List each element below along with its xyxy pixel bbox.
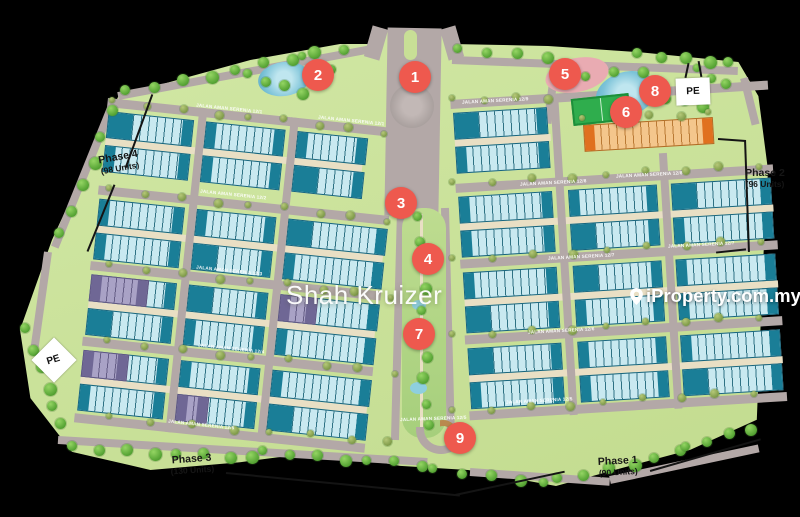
watermark-center: Shah Kruizer bbox=[286, 280, 442, 311]
tree-icon bbox=[512, 48, 523, 59]
tree-icon bbox=[107, 105, 118, 116]
tree-icon bbox=[704, 56, 717, 69]
tree-icon bbox=[489, 331, 496, 338]
map-marker-6: 6 bbox=[610, 96, 642, 128]
tree-icon bbox=[539, 478, 548, 487]
house-row bbox=[568, 185, 658, 217]
pe-box-right: PE bbox=[676, 77, 711, 105]
tree-icon bbox=[266, 429, 272, 435]
tree-icon bbox=[179, 345, 187, 353]
house-row bbox=[455, 141, 550, 174]
tree-icon bbox=[392, 371, 398, 377]
tree-icon bbox=[353, 363, 362, 372]
house-row-purple bbox=[81, 350, 130, 382]
location-pin-icon bbox=[630, 288, 643, 305]
map-marker-1: 1 bbox=[399, 61, 431, 93]
pe-label: PE bbox=[46, 353, 62, 367]
map-marker-2: 2 bbox=[302, 59, 334, 91]
tree-icon bbox=[705, 109, 711, 115]
tree-icon bbox=[216, 275, 225, 284]
map-marker-9: 9 bbox=[444, 422, 476, 454]
map-marker-8: 8 bbox=[639, 75, 671, 107]
tree-icon bbox=[486, 470, 497, 481]
tree-icon bbox=[544, 95, 553, 104]
tree-icon bbox=[566, 402, 575, 411]
map-marker-7: 7 bbox=[403, 318, 435, 350]
map-marker-3: 3 bbox=[385, 187, 417, 219]
tree-icon bbox=[106, 261, 112, 267]
tree-icon bbox=[579, 115, 585, 121]
tree-icon bbox=[723, 57, 733, 67]
tree-icon bbox=[297, 88, 309, 100]
tree-icon bbox=[751, 391, 757, 397]
tree-icon bbox=[243, 69, 252, 78]
tree-icon bbox=[104, 337, 110, 343]
tree-icon bbox=[316, 122, 324, 130]
tree-icon bbox=[639, 394, 646, 401]
tree-icon bbox=[682, 318, 690, 326]
tree-icon bbox=[424, 420, 434, 430]
tree-icon bbox=[645, 111, 653, 119]
phase-3-label: Phase 3 (130 Units) bbox=[159, 452, 224, 477]
tree-icon bbox=[180, 105, 188, 113]
tree-icon bbox=[758, 239, 764, 245]
map-marker-4: 4 bbox=[412, 243, 444, 275]
tree-icon bbox=[632, 48, 642, 58]
tree-icon bbox=[745, 424, 757, 436]
house-row bbox=[682, 363, 783, 396]
tree-icon bbox=[77, 179, 89, 191]
tree-icon bbox=[422, 400, 431, 409]
tree-icon bbox=[346, 211, 355, 220]
phase-1-label: Phase 1 (90 Units) bbox=[585, 454, 650, 478]
watermark-brand: iProperty.com.my bbox=[630, 285, 800, 307]
tree-icon bbox=[95, 132, 105, 142]
tree-icon bbox=[681, 442, 690, 451]
site-plan: PE PE Phase 4 (98 Units) Phase 2 (96 Uni… bbox=[0, 0, 800, 517]
tree-icon bbox=[298, 52, 306, 60]
house-row bbox=[453, 107, 548, 140]
tree-icon bbox=[258, 446, 267, 455]
tree-icon bbox=[143, 267, 150, 274]
tree-icon bbox=[246, 451, 259, 464]
tree-icon bbox=[428, 464, 437, 473]
entrance-median bbox=[404, 30, 417, 60]
tree-icon bbox=[120, 85, 130, 95]
tree-icon bbox=[449, 95, 455, 101]
tree-icon bbox=[600, 399, 606, 405]
tree-icon bbox=[67, 441, 77, 451]
tree-icon bbox=[47, 401, 57, 411]
pe-label: PE bbox=[686, 86, 700, 97]
tree-icon bbox=[248, 354, 254, 360]
tree-icon bbox=[44, 383, 57, 396]
tree-icon bbox=[287, 54, 299, 66]
tree-icon bbox=[603, 172, 609, 178]
tree-icon bbox=[383, 437, 392, 446]
tree-icon bbox=[488, 407, 495, 414]
tree-icon bbox=[721, 79, 731, 89]
tree-icon bbox=[20, 323, 30, 333]
house-row bbox=[463, 267, 558, 300]
tree-icon bbox=[323, 362, 331, 370]
house-group bbox=[450, 77, 788, 426]
tree-icon bbox=[702, 437, 712, 447]
tree-icon bbox=[756, 315, 762, 321]
tree-icon bbox=[677, 112, 686, 121]
tree-icon bbox=[307, 430, 314, 437]
tree-icon bbox=[312, 450, 323, 461]
house-row bbox=[470, 377, 565, 410]
map-marker-5: 5 bbox=[549, 58, 581, 90]
house-row bbox=[579, 370, 669, 402]
tree-icon bbox=[344, 123, 353, 132]
tree-icon bbox=[724, 428, 735, 439]
tree-icon bbox=[581, 72, 590, 81]
tree-icon bbox=[542, 52, 554, 64]
tree-icon bbox=[417, 461, 428, 472]
tree-icon bbox=[381, 131, 387, 137]
tree-icon bbox=[261, 77, 271, 87]
tree-icon bbox=[279, 80, 290, 91]
tree-icon bbox=[384, 219, 390, 225]
tree-icon bbox=[245, 114, 251, 120]
tree-icon bbox=[449, 331, 455, 337]
house-row bbox=[460, 225, 555, 258]
tree-icon bbox=[66, 206, 77, 217]
tree-icon bbox=[389, 456, 399, 466]
tree-icon bbox=[230, 65, 240, 75]
tree-icon bbox=[106, 413, 112, 419]
tree-icon bbox=[109, 97, 115, 103]
tree-icon bbox=[149, 82, 160, 93]
tree-icon bbox=[449, 179, 455, 185]
tree-icon bbox=[489, 255, 496, 262]
tree-icon bbox=[422, 352, 433, 363]
tree-icon bbox=[449, 255, 455, 261]
tree-icon bbox=[609, 67, 619, 77]
tree-icon bbox=[179, 269, 187, 277]
tree-icon bbox=[247, 278, 253, 284]
tree-icon bbox=[214, 199, 223, 208]
leader-line bbox=[226, 472, 460, 496]
tree-icon bbox=[603, 323, 609, 329]
house-row bbox=[458, 191, 553, 224]
tree-icon bbox=[362, 456, 371, 465]
tree-icon bbox=[413, 212, 422, 221]
phase-2-label: Phase 2 (96 Units) bbox=[733, 168, 797, 189]
tree-icon bbox=[680, 52, 692, 64]
tree-icon bbox=[348, 436, 356, 444]
tree-icon bbox=[710, 389, 719, 398]
tree-icon bbox=[678, 394, 686, 402]
tree-icon bbox=[225, 452, 237, 464]
tree-icon bbox=[340, 455, 352, 467]
tree-icon bbox=[215, 111, 224, 120]
tree-icon bbox=[649, 453, 659, 463]
tree-icon bbox=[453, 44, 462, 53]
tree-icon bbox=[529, 250, 537, 258]
house-row bbox=[577, 336, 667, 368]
tree-icon bbox=[245, 202, 251, 208]
tree-icon bbox=[449, 407, 455, 413]
tree-icon bbox=[54, 228, 64, 238]
house-row bbox=[467, 343, 562, 376]
tree-icon bbox=[55, 418, 66, 429]
tree-icon bbox=[178, 193, 186, 201]
tree-icon bbox=[489, 179, 496, 186]
tree-icon bbox=[317, 210, 325, 218]
tree-icon bbox=[339, 45, 349, 55]
tree-icon bbox=[285, 450, 295, 460]
tree-icon bbox=[206, 71, 219, 84]
tree-icon bbox=[216, 351, 225, 360]
tree-icon bbox=[457, 469, 467, 479]
watermark-brand-text: iProperty.com.my bbox=[646, 285, 800, 307]
